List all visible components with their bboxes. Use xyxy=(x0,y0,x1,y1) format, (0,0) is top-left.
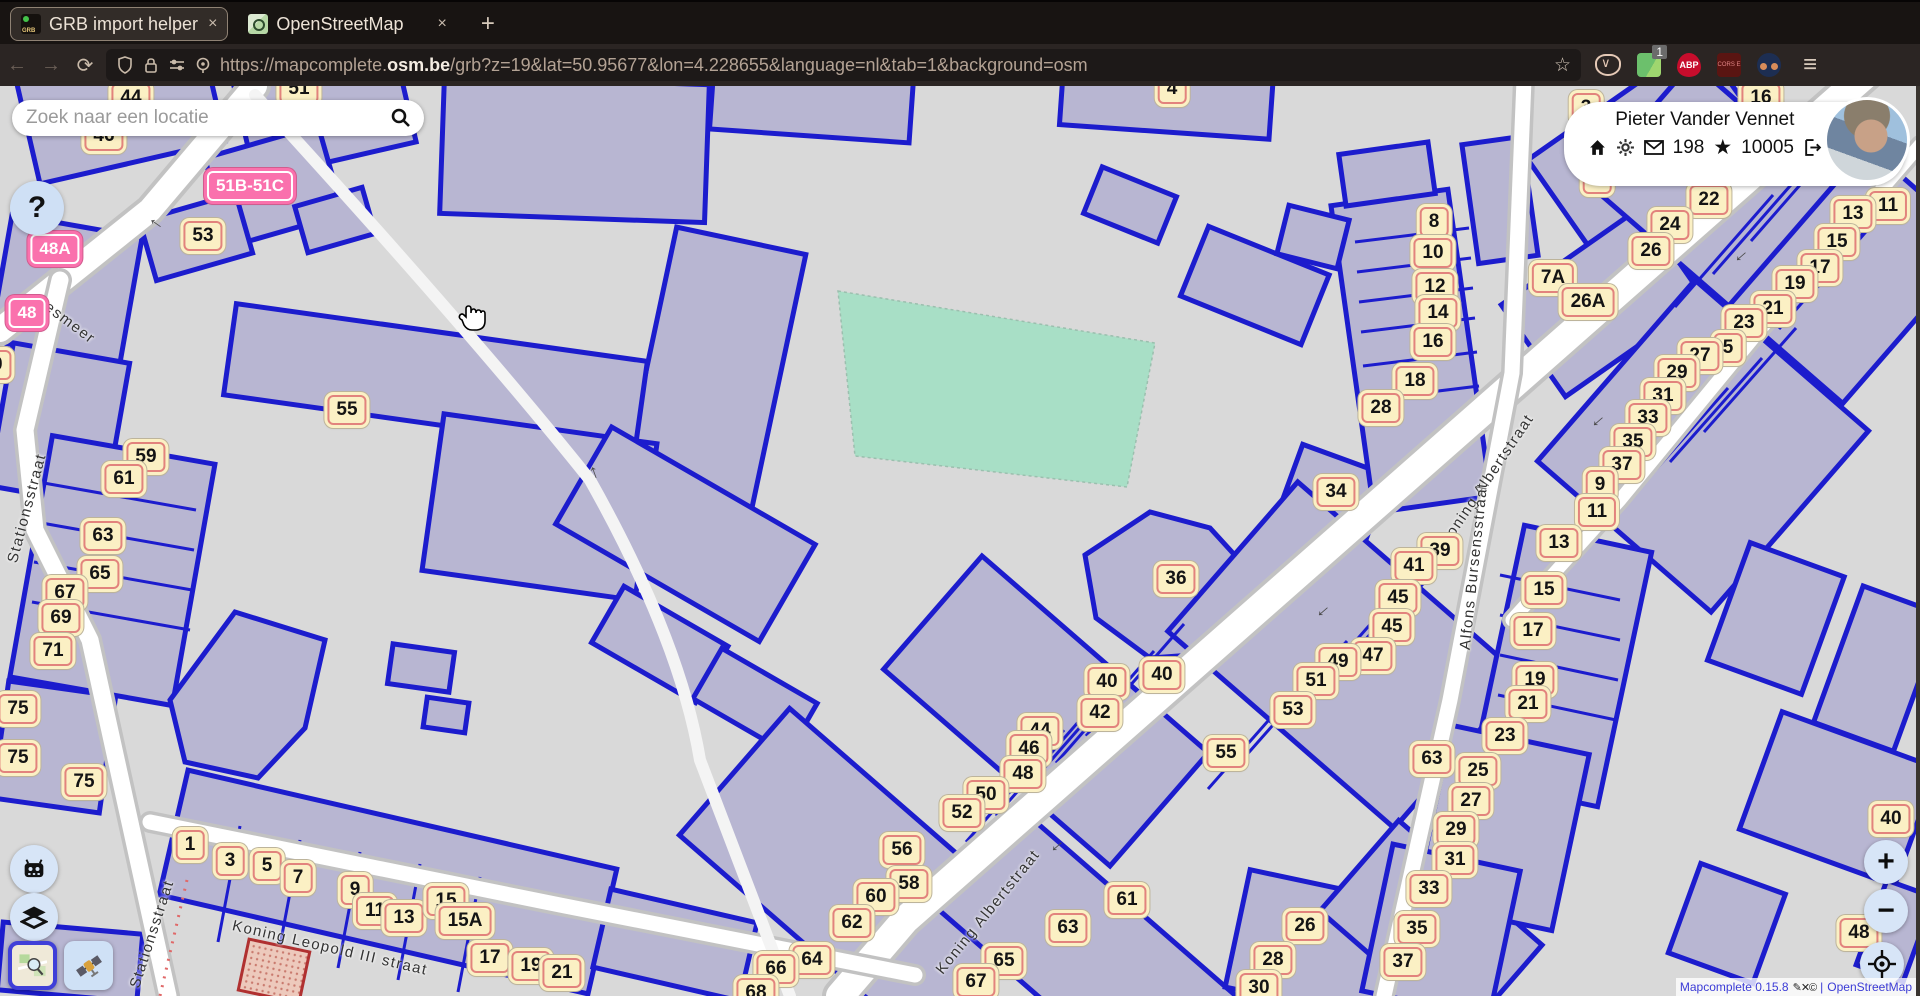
house-number-badge[interactable]: 15 xyxy=(1524,575,1563,605)
pocket-extension-icon[interactable] xyxy=(1595,54,1621,76)
layers-icon xyxy=(20,903,48,931)
user-avatar[interactable] xyxy=(1824,97,1910,183)
house-number-badge[interactable]: 8 xyxy=(1420,207,1449,237)
attribution-separator: | xyxy=(1820,980,1823,994)
house-number-badge[interactable]: 55 xyxy=(327,395,366,425)
house-number-badge[interactable]: 30 xyxy=(1239,973,1278,996)
house-number-badge[interactable]: 3 xyxy=(216,846,245,876)
house-number-badge[interactable]: 13 xyxy=(1539,528,1578,558)
osm-carto-thumbnail-icon xyxy=(18,946,47,986)
reload-button[interactable]: ⟳ xyxy=(68,52,102,79)
house-number-badge[interactable]: 36 xyxy=(1156,564,1195,594)
house-number-badge[interactable]: 33 xyxy=(1409,874,1448,904)
house-number-badge[interactable]: 48 xyxy=(9,298,46,328)
house-number-badge[interactable]: 34 xyxy=(1316,477,1355,507)
basemap-osm-button[interactable] xyxy=(8,941,57,990)
zoom-out-button[interactable]: − xyxy=(1864,889,1908,933)
url-text[interactable]: https://mapcomplete.osm.be/grb?z=19&lat=… xyxy=(220,55,1088,76)
browser-tab-bar: GRB import helper × OpenStreetMap × + xyxy=(0,0,1920,46)
robot-assistant-button[interactable] xyxy=(10,845,58,893)
house-number-badge[interactable]: 62 xyxy=(832,908,871,938)
adblock-extension-icon[interactable]: ABP xyxy=(1677,53,1701,77)
house-number-badge[interactable]: 51B-51C xyxy=(207,171,293,201)
house-number-badge[interactable]: 42 xyxy=(1080,698,1119,728)
browser-toolbar: ← → ⟳ https://mapcomplete.osm.be/grb?z=1… xyxy=(0,44,1920,86)
user-panel[interactable]: Pieter Vander Vennet 198 ★ 10005 xyxy=(1564,102,1906,186)
house-number-badge[interactable]: 61 xyxy=(1107,885,1146,915)
satellite-icon xyxy=(71,948,107,984)
house-number-badge[interactable]: 52 xyxy=(942,798,981,828)
new-tab-button[interactable]: + xyxy=(475,9,501,39)
attribution-osm-link[interactable]: OpenStreetMap xyxy=(1827,980,1912,994)
house-number-badge[interactable]: 63 xyxy=(1048,913,1087,943)
window-edge xyxy=(1916,86,1920,996)
permissions-toggle-icon[interactable] xyxy=(168,56,186,74)
house-number-badge[interactable]: 29 xyxy=(1436,815,1475,845)
background-layers-button[interactable] xyxy=(10,893,58,941)
settings-gear-icon[interactable] xyxy=(1616,138,1635,157)
cors-extension-icon[interactable]: CORS E xyxy=(1717,53,1741,77)
house-number-badge[interactable]: 69 xyxy=(41,603,80,633)
message-count: 198 xyxy=(1673,137,1705,159)
house-number-badge[interactable]: 37 xyxy=(1383,947,1422,977)
search-icon[interactable] xyxy=(390,107,412,129)
house-number-badge[interactable]: 40 xyxy=(1871,804,1910,834)
grb-favicon-icon xyxy=(21,14,41,34)
menu-hamburger-icon[interactable]: ≡ xyxy=(1803,51,1817,79)
logout-icon[interactable] xyxy=(1803,138,1822,157)
house-number-badge[interactable]: 40 xyxy=(1142,660,1181,690)
tab-label: GRB import helper xyxy=(49,14,198,35)
attribution-icons: ✎✕© xyxy=(1793,981,1817,994)
house-number-badge[interactable]: 47 xyxy=(1353,641,1392,671)
house-number-badge[interactable]: 21 xyxy=(542,958,581,988)
changeset-count: 10005 xyxy=(1741,137,1794,159)
house-number-badge[interactable]: 18 xyxy=(1395,366,1434,396)
osm-favicon-icon xyxy=(248,14,268,34)
help-button[interactable]: ? xyxy=(10,181,64,235)
house-number-badge[interactable]: 13 xyxy=(1833,199,1872,229)
house-number-badge[interactable]: 63 xyxy=(83,521,122,551)
house-number-badge[interactable]: 51 xyxy=(1296,666,1335,696)
house-number-badge[interactable]: 50 xyxy=(0,350,12,380)
zoom-in-button[interactable]: + xyxy=(1864,840,1908,884)
house-number-badge[interactable]: 11 xyxy=(1578,497,1616,527)
house-number-badge[interactable]: 23 xyxy=(1485,721,1524,751)
house-number-badge[interactable]: 28 xyxy=(1361,393,1400,423)
bookmark-star-icon[interactable]: ☆ xyxy=(1554,54,1571,77)
tab-openstreetmap[interactable]: OpenStreetMap × xyxy=(238,8,456,40)
tab-close-icon[interactable]: × xyxy=(437,15,446,33)
house-number-badge[interactable]: 26A xyxy=(1562,287,1615,317)
tab-label: OpenStreetMap xyxy=(276,14,403,35)
house-number-badge[interactable]: 40 xyxy=(1087,667,1126,697)
home-icon[interactable] xyxy=(1588,138,1607,157)
house-number-badge[interactable]: 9 xyxy=(1586,470,1615,500)
house-number-badge[interactable]: 5 xyxy=(253,851,282,881)
house-number-badge[interactable]: 11 xyxy=(1869,191,1907,221)
house-number-badge[interactable]: 10 xyxy=(1413,238,1452,268)
robot-icon xyxy=(20,855,48,883)
house-number-badge[interactable]: 75 xyxy=(0,694,38,724)
house-number-badge[interactable]: 68 xyxy=(736,978,775,996)
url-bar[interactable]: https://mapcomplete.osm.be/grb?z=19&lat=… xyxy=(106,49,1581,81)
house-number-badge[interactable]: 26 xyxy=(1285,911,1324,941)
house-number-badge[interactable]: 13 xyxy=(384,903,423,933)
house-number-badge[interactable]: 48A xyxy=(30,234,79,264)
house-number-badge[interactable]: 1 xyxy=(176,830,205,860)
house-number-badge[interactable]: 17 xyxy=(470,943,509,973)
house-number-badge[interactable]: 75 xyxy=(0,743,38,773)
search-input[interactable] xyxy=(24,106,390,130)
house-number-badge[interactable]: 35 xyxy=(1397,914,1436,944)
house-number-badge[interactable]: 21 xyxy=(1508,689,1547,719)
house-number-badge[interactable]: 75 xyxy=(64,767,103,797)
house-number-badge[interactable]: 63 xyxy=(1412,744,1451,774)
mask-extension-icon[interactable] xyxy=(1757,53,1781,77)
house-number-badge[interactable]: 53 xyxy=(1273,695,1312,725)
tab-close-icon[interactable]: × xyxy=(208,15,217,33)
house-number-badge[interactable]: 71 xyxy=(33,636,72,666)
attribution-app[interactable]: Mapcomplete 0.15.8 xyxy=(1680,980,1789,994)
location-pin-icon[interactable] xyxy=(194,56,212,74)
house-number-badge[interactable]: 65 xyxy=(80,559,119,589)
house-number-badge[interactable]: 48 xyxy=(1003,759,1042,789)
house-number-badge[interactable]: 28 xyxy=(1253,945,1292,975)
back-button[interactable]: ← xyxy=(0,53,34,78)
messages-envelope-icon[interactable] xyxy=(1644,140,1664,155)
house-number-badge[interactable]: 61 xyxy=(104,464,143,494)
house-number-badge[interactable]: 64 xyxy=(792,945,831,975)
user-name: Pieter Vander Vennet xyxy=(1588,109,1822,131)
house-number-badge[interactable]: 55 xyxy=(1206,738,1245,768)
star-icon: ★ xyxy=(1713,135,1732,160)
crosshair-icon xyxy=(1867,949,1897,979)
map-attribution[interactable]: Mapcomplete 0.15.8 ✎✕© | OpenStreetMap xyxy=(1676,978,1916,996)
house-number-badge[interactable]: 56 xyxy=(882,835,921,865)
house-number-badge[interactable]: 31 xyxy=(1435,845,1474,875)
house-number-badge[interactable]: 7 xyxy=(284,863,313,893)
house-number-badge[interactable]: 45 xyxy=(1372,612,1411,642)
house-number-badge[interactable]: 53 xyxy=(183,221,222,251)
map-extension-icon[interactable]: 1 xyxy=(1637,53,1661,77)
house-number-badge[interactable]: 22 xyxy=(1689,185,1728,215)
shield-icon[interactable] xyxy=(116,56,134,74)
extension-toolbar: 1 ABP CORS E ≡ xyxy=(1595,51,1831,79)
house-number-badge[interactable]: 67 xyxy=(956,967,995,996)
lock-icon[interactable] xyxy=(142,56,160,74)
basemap-satellite-button[interactable] xyxy=(64,941,113,990)
extension-badge: 1 xyxy=(1652,45,1667,59)
house-number-badge[interactable]: 16 xyxy=(1413,327,1452,357)
house-number-badge[interactable]: 15A xyxy=(439,906,492,936)
house-number-badge[interactable]: 26 xyxy=(1631,236,1670,266)
house-number-badge[interactable]: 27 xyxy=(1451,786,1490,816)
location-search[interactable] xyxy=(12,100,424,136)
house-number-badge[interactable]: 45 xyxy=(1378,583,1417,613)
tab-grb-import-helper[interactable]: GRB import helper × xyxy=(10,7,228,41)
house-number-badge[interactable]: 41 xyxy=(1394,551,1433,581)
forward-button[interactable]: → xyxy=(34,53,68,78)
house-number-badge[interactable]: 14 xyxy=(1418,298,1457,328)
house-number-badge[interactable]: 25 xyxy=(1458,756,1497,786)
house-number-badge[interactable]: 17 xyxy=(1513,616,1552,646)
